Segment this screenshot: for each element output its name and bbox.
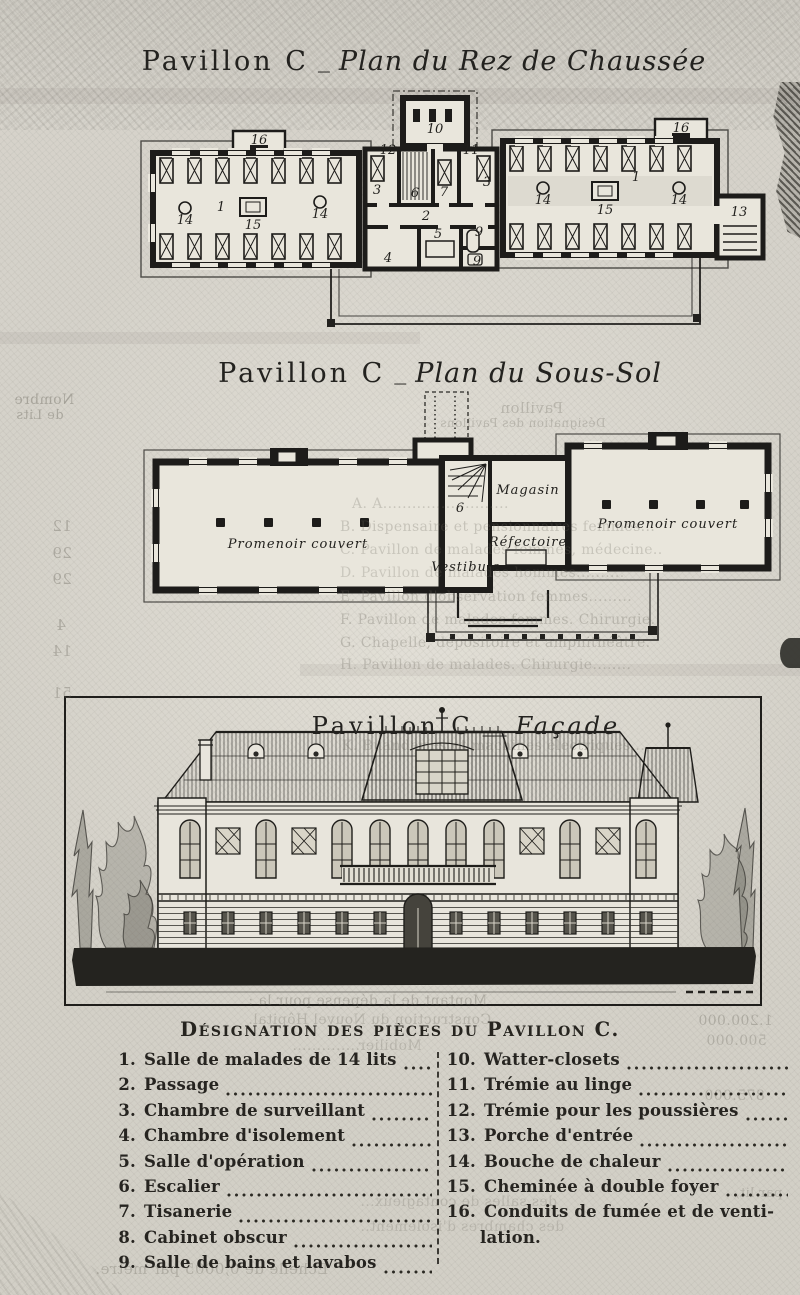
plan-rdc-figure: 16161210113673245991311415141415114: [88, 88, 780, 338]
plan-label: 16: [673, 121, 690, 136]
title-name: Plan du Sous-Sol: [415, 358, 662, 389]
list-item-label: Salle d'opération: [144, 1152, 305, 1171]
list-item-number: 6.: [112, 1177, 136, 1196]
list-item-label: Passage: [144, 1075, 219, 1094]
list-item-number: 15.: [446, 1177, 476, 1196]
plan-label: 5: [434, 227, 442, 242]
list-item-number: 3.: [112, 1101, 136, 1120]
plan-label: 12: [380, 143, 397, 158]
dotted-leader: [726, 1193, 788, 1197]
plan-label: 1: [632, 170, 640, 185]
legend-title: Désignation des pièces du Pavillon C.: [0, 1018, 800, 1041]
plan-label: 14: [535, 193, 552, 208]
dotted-leader: [239, 1219, 432, 1223]
list-item-number: 11.: [446, 1075, 476, 1094]
plan-label: Vestibule: [431, 560, 501, 575]
plan-label: 10: [427, 122, 444, 137]
list-item-label: lation.: [480, 1228, 541, 1247]
list-item-label: Porche d'entrée: [484, 1126, 633, 1145]
list-item-label: Chambre de surveillant: [144, 1101, 365, 1120]
dotted-leader: [639, 1092, 788, 1096]
plan-label: 3: [483, 175, 491, 190]
list-item-label: Trémie pour les poussières: [484, 1101, 739, 1120]
list-item: 5.Salle d'opération: [112, 1152, 434, 1177]
ghost-text: de Lits: [16, 408, 64, 423]
list-item-number: 7.: [112, 1202, 136, 1221]
list-item: 15.Cheminée à double foyer: [446, 1177, 790, 1202]
dotted-leader: [627, 1066, 788, 1070]
plan-label: Promenoir couvert: [227, 537, 368, 552]
plan-label: 11: [463, 143, 480, 158]
facade-drawing: [66, 698, 756, 1000]
list-item-number: 10.: [446, 1050, 476, 1069]
title-prefix: Pavillon C: [142, 46, 309, 77]
dotted-leader: [226, 1092, 432, 1096]
title-name: Plan du Rez de Chaussée: [339, 46, 706, 77]
list-item-number: 5.: [112, 1152, 136, 1171]
plan-label: 14: [177, 213, 194, 228]
list-item: 1.Salle de malades de 14 lits: [112, 1050, 434, 1075]
dotted-leader: [227, 1193, 432, 1197]
title-name: Façade: [516, 712, 621, 740]
list-item-number: 2.: [112, 1075, 136, 1094]
list-item-number: 8.: [112, 1228, 136, 1247]
list-item-label: Escalier: [144, 1177, 220, 1196]
plan-soussol-figure: MagasinRéfectoireVestibulePromenoir couv…: [98, 388, 782, 660]
list-item: 16.Conduits de fumée et de venti-: [446, 1202, 790, 1227]
plan-label: 15: [245, 218, 262, 233]
ghost-text: 4: [56, 616, 66, 634]
list-item: 10.Watter-closets: [446, 1050, 790, 1075]
list-item: 14.Bouche de chaleur: [446, 1152, 790, 1177]
title-separator: _: [394, 357, 406, 385]
list-item-number: 14.: [446, 1152, 476, 1171]
plan-label: 6: [411, 186, 419, 201]
list-item-label: Cheminée à double foyer: [484, 1177, 719, 1196]
dotted-leader: [312, 1168, 432, 1172]
list-item: 12.Trémie pour les poussières: [446, 1101, 790, 1126]
list-item: 2.Passage: [112, 1075, 434, 1100]
plan-label: 9: [473, 254, 481, 269]
list-item-number: 12.: [446, 1101, 476, 1120]
list-item-number: 9.: [112, 1253, 136, 1272]
list-item-label: Bouche de chaleur: [484, 1152, 661, 1171]
list-item-label: Watter-closets: [484, 1050, 620, 1069]
list-item: 11.Trémie au linge: [446, 1075, 790, 1100]
plan-title-soussol: Pavillon C_Plan du Sous-Sol: [40, 358, 800, 389]
legend-column-divider: [437, 1052, 439, 1264]
dotted-leader: [668, 1168, 788, 1172]
dotted-leader: [294, 1244, 432, 1248]
plan-title-rdc: Pavillon C_Plan du Rez de Chaussée: [24, 46, 800, 77]
dotted-leader: [372, 1117, 432, 1121]
list-item-label: Trémie au linge: [484, 1075, 632, 1094]
plan-label: 2: [421, 209, 430, 224]
ghost-text: 14: [52, 642, 72, 660]
legend-column-right: 10.Watter-closets11.Trémie au linge12.Tr…: [446, 1050, 790, 1253]
plan-label: 14: [671, 193, 688, 208]
plan-label: 13: [731, 205, 748, 220]
list-item-number: 16.: [446, 1202, 476, 1221]
legend-column-left: 1.Salle de malades de 14 lits2.Passage3.…: [112, 1050, 434, 1279]
plan-label: Promenoir couvert: [597, 517, 738, 532]
plan-label: 9: [475, 225, 483, 240]
title-separator: _: [318, 45, 330, 73]
ghost-text: 29: [52, 544, 72, 562]
list-item-label: Salle de malades de 14 lits: [144, 1050, 397, 1069]
list-item-label: Chambre d'isolement: [144, 1126, 345, 1145]
list-item-continuation: lation.: [446, 1228, 790, 1253]
dotted-leader: [384, 1270, 432, 1274]
list-item-label: Salle de bains et lavabos: [144, 1253, 377, 1272]
plan-label: 3: [373, 183, 381, 198]
facade-figure: Pavillon C__Façade: [64, 696, 762, 1006]
title-prefix: Pavillon C: [312, 712, 474, 740]
plan-title-facade: Pavillon C__Façade: [66, 712, 800, 740]
dotted-leader: [746, 1117, 788, 1121]
plan-label: 4: [383, 251, 392, 266]
edge-ink-blob: [780, 638, 800, 668]
plan-label: 15: [597, 203, 614, 218]
list-item-number: 4.: [112, 1126, 136, 1145]
dotted-leader: [352, 1143, 432, 1147]
ghost-text: 29: [52, 570, 72, 588]
plan-label: Réfectoire: [488, 535, 567, 550]
title-separator: __: [483, 709, 507, 737]
plan-label: 1: [217, 200, 225, 215]
dotted-leader: [404, 1066, 432, 1070]
ghost-text: Nombre: [14, 392, 74, 408]
plan-label: Magasin: [495, 483, 559, 498]
list-item: 4.Chambre d'isolement: [112, 1126, 434, 1151]
list-item: 6.Escalier: [112, 1177, 434, 1202]
list-item: 7.Tisanerie: [112, 1202, 434, 1227]
list-item: 13.Porche d'entrée: [446, 1126, 790, 1151]
list-item-label: Tisanerie: [144, 1202, 232, 1221]
scan-streak: [300, 664, 800, 676]
list-item-label: Conduits de fumée et de venti-: [484, 1202, 774, 1221]
plan-label: 7: [440, 185, 449, 200]
dotted-leader: [640, 1143, 788, 1147]
ghost-text: 12: [52, 517, 72, 535]
list-item-number: 1.: [112, 1050, 136, 1069]
list-item-label: Cabinet obscur: [144, 1228, 287, 1247]
scanned-document-page: Nombrede Lits12292941451PavillonDésignat…: [0, 0, 800, 1295]
list-item: 9.Salle de bains et lavabos: [112, 1253, 434, 1278]
list-item: 8.Cabinet obscur: [112, 1228, 434, 1253]
plan-label: 6: [456, 501, 464, 516]
plan-label: 16: [251, 133, 268, 148]
title-prefix: Pavillon C: [218, 358, 385, 389]
plan-label: 14: [312, 207, 329, 222]
list-item: 3.Chambre de surveillant: [112, 1101, 434, 1126]
list-item-number: 13.: [446, 1126, 476, 1145]
